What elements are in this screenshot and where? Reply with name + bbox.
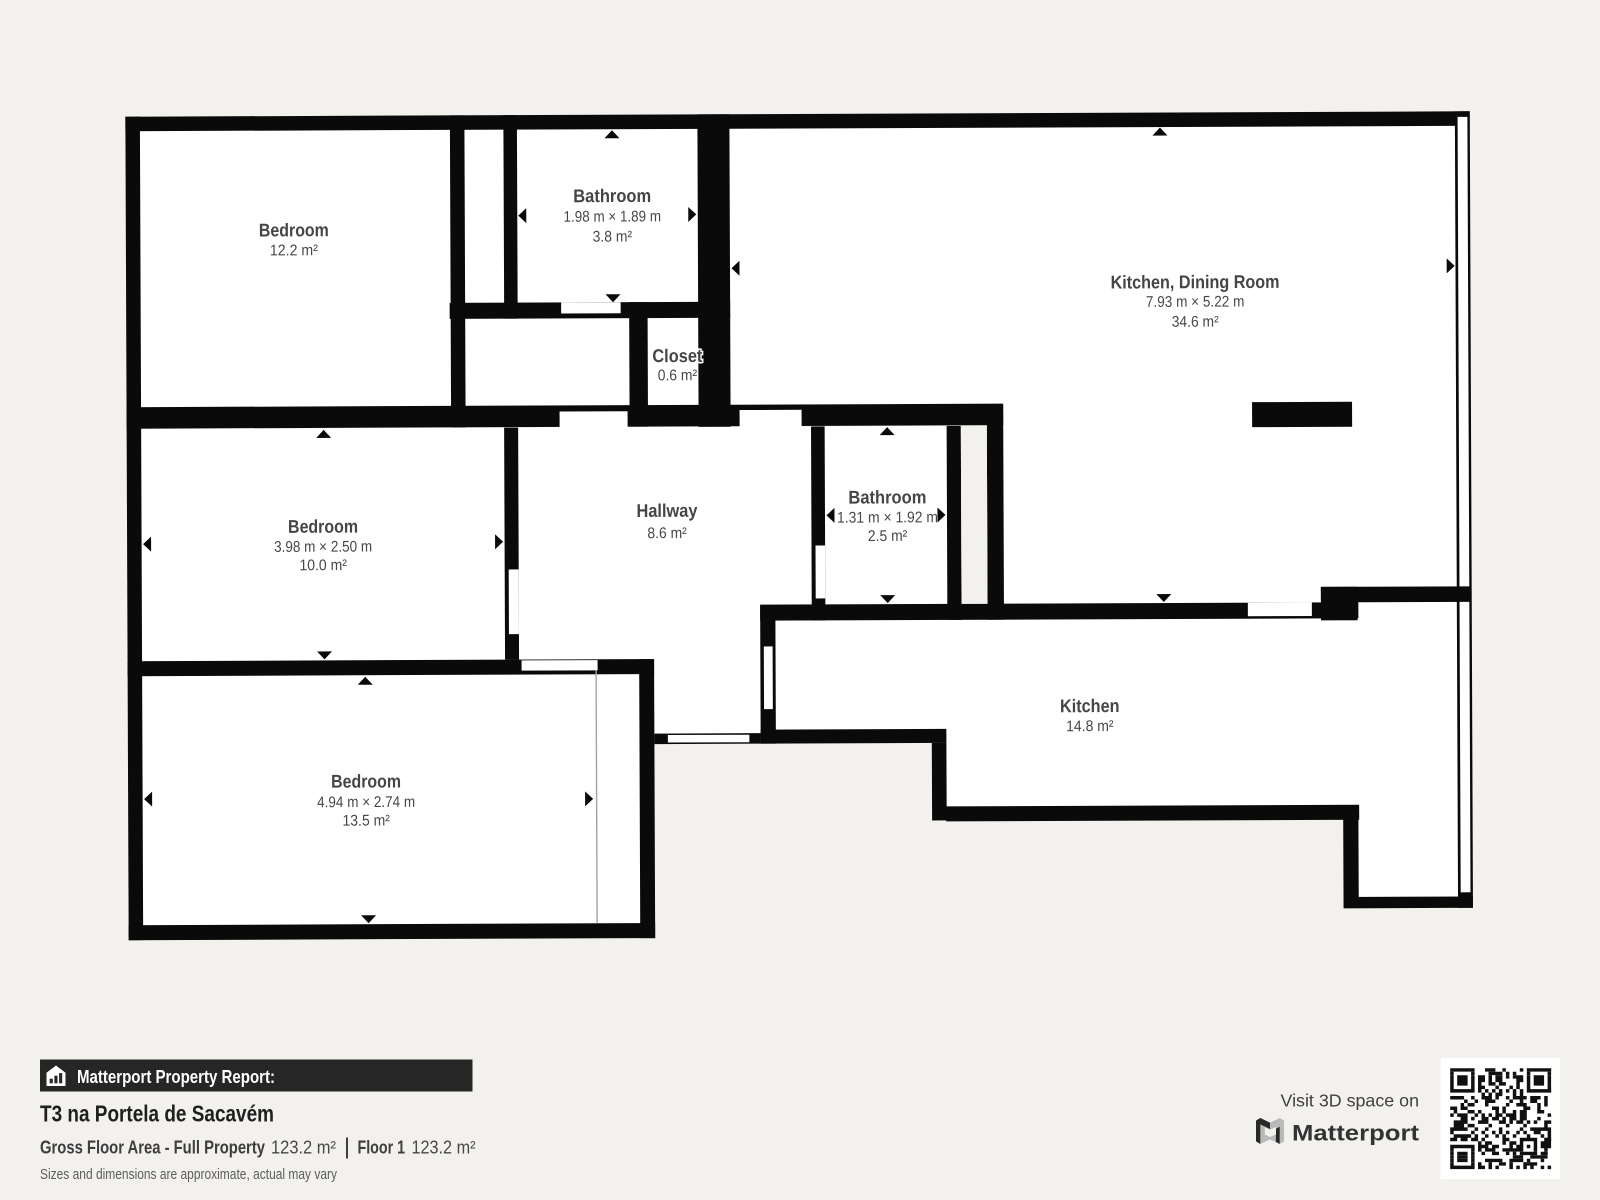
svg-text:Matterport: Matterport: [1292, 1121, 1420, 1146]
svg-text:Closet: Closet: [652, 345, 702, 366]
svg-text:Bathroom: Bathroom: [848, 486, 926, 507]
svg-text:13.5 m²: 13.5 m²: [342, 812, 390, 829]
svg-text:Hallway: Hallway: [636, 500, 698, 521]
svg-text:Matterport Property Report:: Matterport Property Report:: [77, 1066, 275, 1087]
svg-text:14.8 m²: 14.8 m²: [1066, 718, 1114, 735]
svg-text:8.6 m²: 8.6 m²: [647, 525, 687, 542]
svg-text:7.93 m × 5.22 m: 7.93 m × 5.22 m: [1146, 294, 1245, 311]
svg-text:0.6 m²: 0.6 m²: [658, 367, 698, 384]
svg-text:1.31 m × 1.92 m: 1.31 m × 1.92 m: [837, 509, 938, 526]
svg-text:2.5 m²: 2.5 m²: [868, 528, 908, 545]
svg-text:Visit 3D space on: Visit 3D space on: [1281, 1091, 1420, 1111]
svg-text:34.6 m²: 34.6 m²: [1172, 314, 1219, 331]
svg-text:123.2 m²: 123.2 m²: [271, 1138, 336, 1158]
svg-text:Bedroom: Bedroom: [259, 219, 329, 240]
svg-text:1.98 m × 1.89 m: 1.98 m × 1.89 m: [563, 208, 661, 225]
svg-text:Floor 1: Floor 1: [358, 1138, 406, 1158]
svg-text:3.98 m × 2.50 m: 3.98 m × 2.50 m: [274, 539, 372, 556]
svg-text:Bedroom: Bedroom: [331, 770, 401, 791]
svg-text:Sizes and dimensions are appro: Sizes and dimensions are approximate, ac…: [40, 1166, 337, 1183]
svg-text:Gross Floor Area - Full Proper: Gross Floor Area - Full Property: [40, 1138, 265, 1158]
svg-text:Kitchen: Kitchen: [1060, 695, 1120, 716]
svg-text:3.8 m²: 3.8 m²: [593, 228, 633, 245]
svg-text:4.94 m × 2.74 m: 4.94 m × 2.74 m: [317, 794, 415, 811]
svg-text:T3 na Portela de Sacavém: T3 na Portela de Sacavém: [40, 1101, 274, 1127]
svg-text:Bedroom: Bedroom: [288, 516, 358, 537]
svg-text:Bathroom: Bathroom: [573, 185, 651, 206]
svg-text:10.0 m²: 10.0 m²: [299, 557, 347, 574]
svg-text:123.2 m²: 123.2 m²: [412, 1138, 476, 1158]
svg-text:12.2 m²: 12.2 m²: [270, 242, 318, 259]
svg-text:Kitchen, Dining Room: Kitchen, Dining Room: [1111, 271, 1280, 293]
